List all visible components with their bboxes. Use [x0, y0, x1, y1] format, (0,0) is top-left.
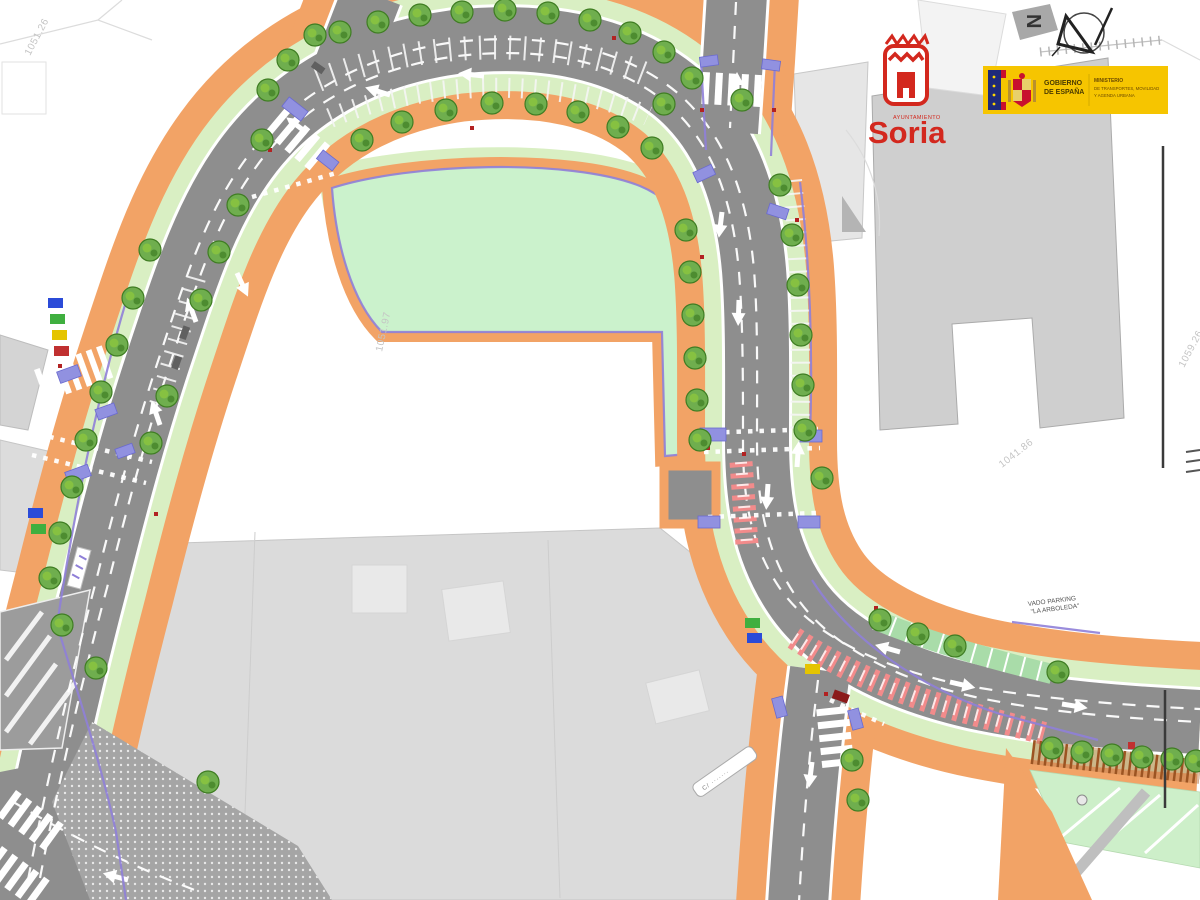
ministry-line1: MINISTERIO	[1094, 78, 1123, 84]
north-letter: N	[1022, 14, 1044, 28]
plan-sheet: N AYUNTAMIENTO Soria GOBIER	[0, 0, 1200, 900]
elevation-label: 1041.86	[997, 437, 1036, 471]
site-plan-map: N AYUNTAMIENTO Soria GOBIER	[0, 0, 1200, 900]
gobierno-line2: DE ESPAÑA	[1044, 87, 1084, 96]
ministry-line2: DE TRANSPORTES, MOVILIDAD	[1094, 86, 1159, 91]
north-branch-road	[728, 0, 737, 132]
elevation-label: 1059.26	[1177, 329, 1200, 370]
gobierno-logo: GOBIERNO DE ESPAÑA MINISTERIO DE TRANSPO…	[983, 66, 1168, 114]
ministry-line3: Y AGENDA URBANA	[1094, 93, 1135, 98]
gobierno-line1: GOBIERNO	[1044, 80, 1083, 87]
north-arrow: N	[1012, 4, 1112, 56]
soria-wordmark: Soria	[868, 115, 946, 150]
